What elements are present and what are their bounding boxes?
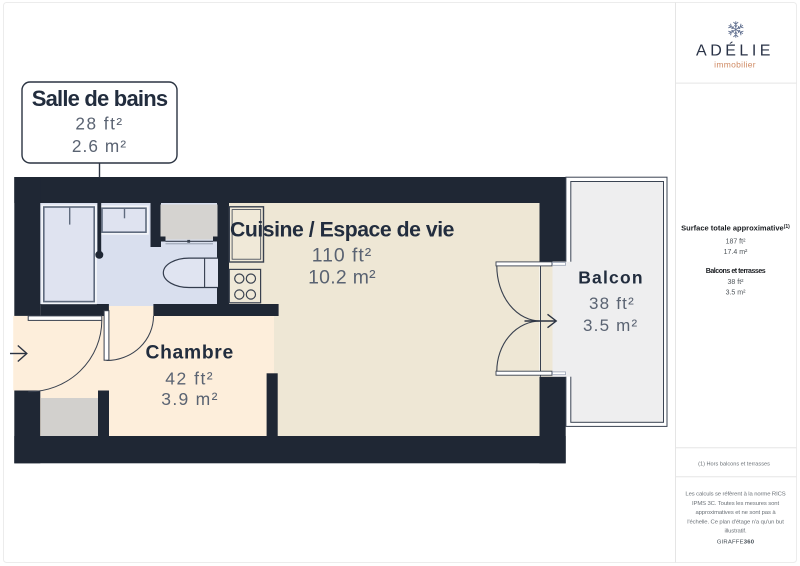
svg-text:Salle de bains: Salle de bains xyxy=(32,86,168,111)
svg-text:Cuisine / Espace de vie: Cuisine / Espace de vie xyxy=(230,219,455,242)
svg-text:28 ft²: 28 ft² xyxy=(75,113,123,133)
svg-text:110 ft²: 110 ft² xyxy=(312,244,373,266)
svg-text:Balcon: Balcon xyxy=(578,267,644,287)
svg-text:Balcons et terrasses: Balcons et terrasses xyxy=(706,268,766,275)
svg-text:illustratif.: illustratif. xyxy=(724,529,747,535)
svg-text:l'échelle. Ce plan d'étage n'a: l'échelle. Ce plan d'étage n'a qu'un but xyxy=(687,519,784,525)
svg-text:3.5 m²: 3.5 m² xyxy=(726,289,747,296)
svg-text:GIRAFFE360: GIRAFFE360 xyxy=(717,540,755,546)
svg-text:10.2 m²: 10.2 m² xyxy=(308,266,376,288)
svg-text:immobilier: immobilier xyxy=(714,60,756,70)
svg-text:(1) Hors balcons et terrasses: (1) Hors balcons et terrasses xyxy=(698,462,770,468)
svg-text:Surface totale approximative(1: Surface totale approximative(1) xyxy=(681,224,790,233)
svg-text:38 ft²: 38 ft² xyxy=(589,294,635,313)
svg-text:38 ft²: 38 ft² xyxy=(728,279,745,286)
svg-text:3.9 m²: 3.9 m² xyxy=(161,389,218,409)
svg-text:187 ft²: 187 ft² xyxy=(726,238,747,245)
svg-text:Chambre: Chambre xyxy=(145,343,233,364)
svg-text:IPMS 3C. Toutes les mesures so: IPMS 3C. Toutes les mesures sont xyxy=(692,501,780,507)
svg-text:Les calculs se réfèrent à la n: Les calculs se réfèrent à la norme RICS xyxy=(685,492,785,498)
svg-text:ADÉLIE: ADÉLIE xyxy=(696,41,774,60)
svg-text:42 ft²: 42 ft² xyxy=(165,369,214,389)
svg-text:3.5 m²: 3.5 m² xyxy=(583,316,638,335)
svg-text:approximatives et ne sont pas: approximatives et ne sont pas à xyxy=(695,510,776,516)
svg-text:17.4 m²: 17.4 m² xyxy=(724,249,748,256)
svg-text:2.6 m²: 2.6 m² xyxy=(72,136,127,156)
